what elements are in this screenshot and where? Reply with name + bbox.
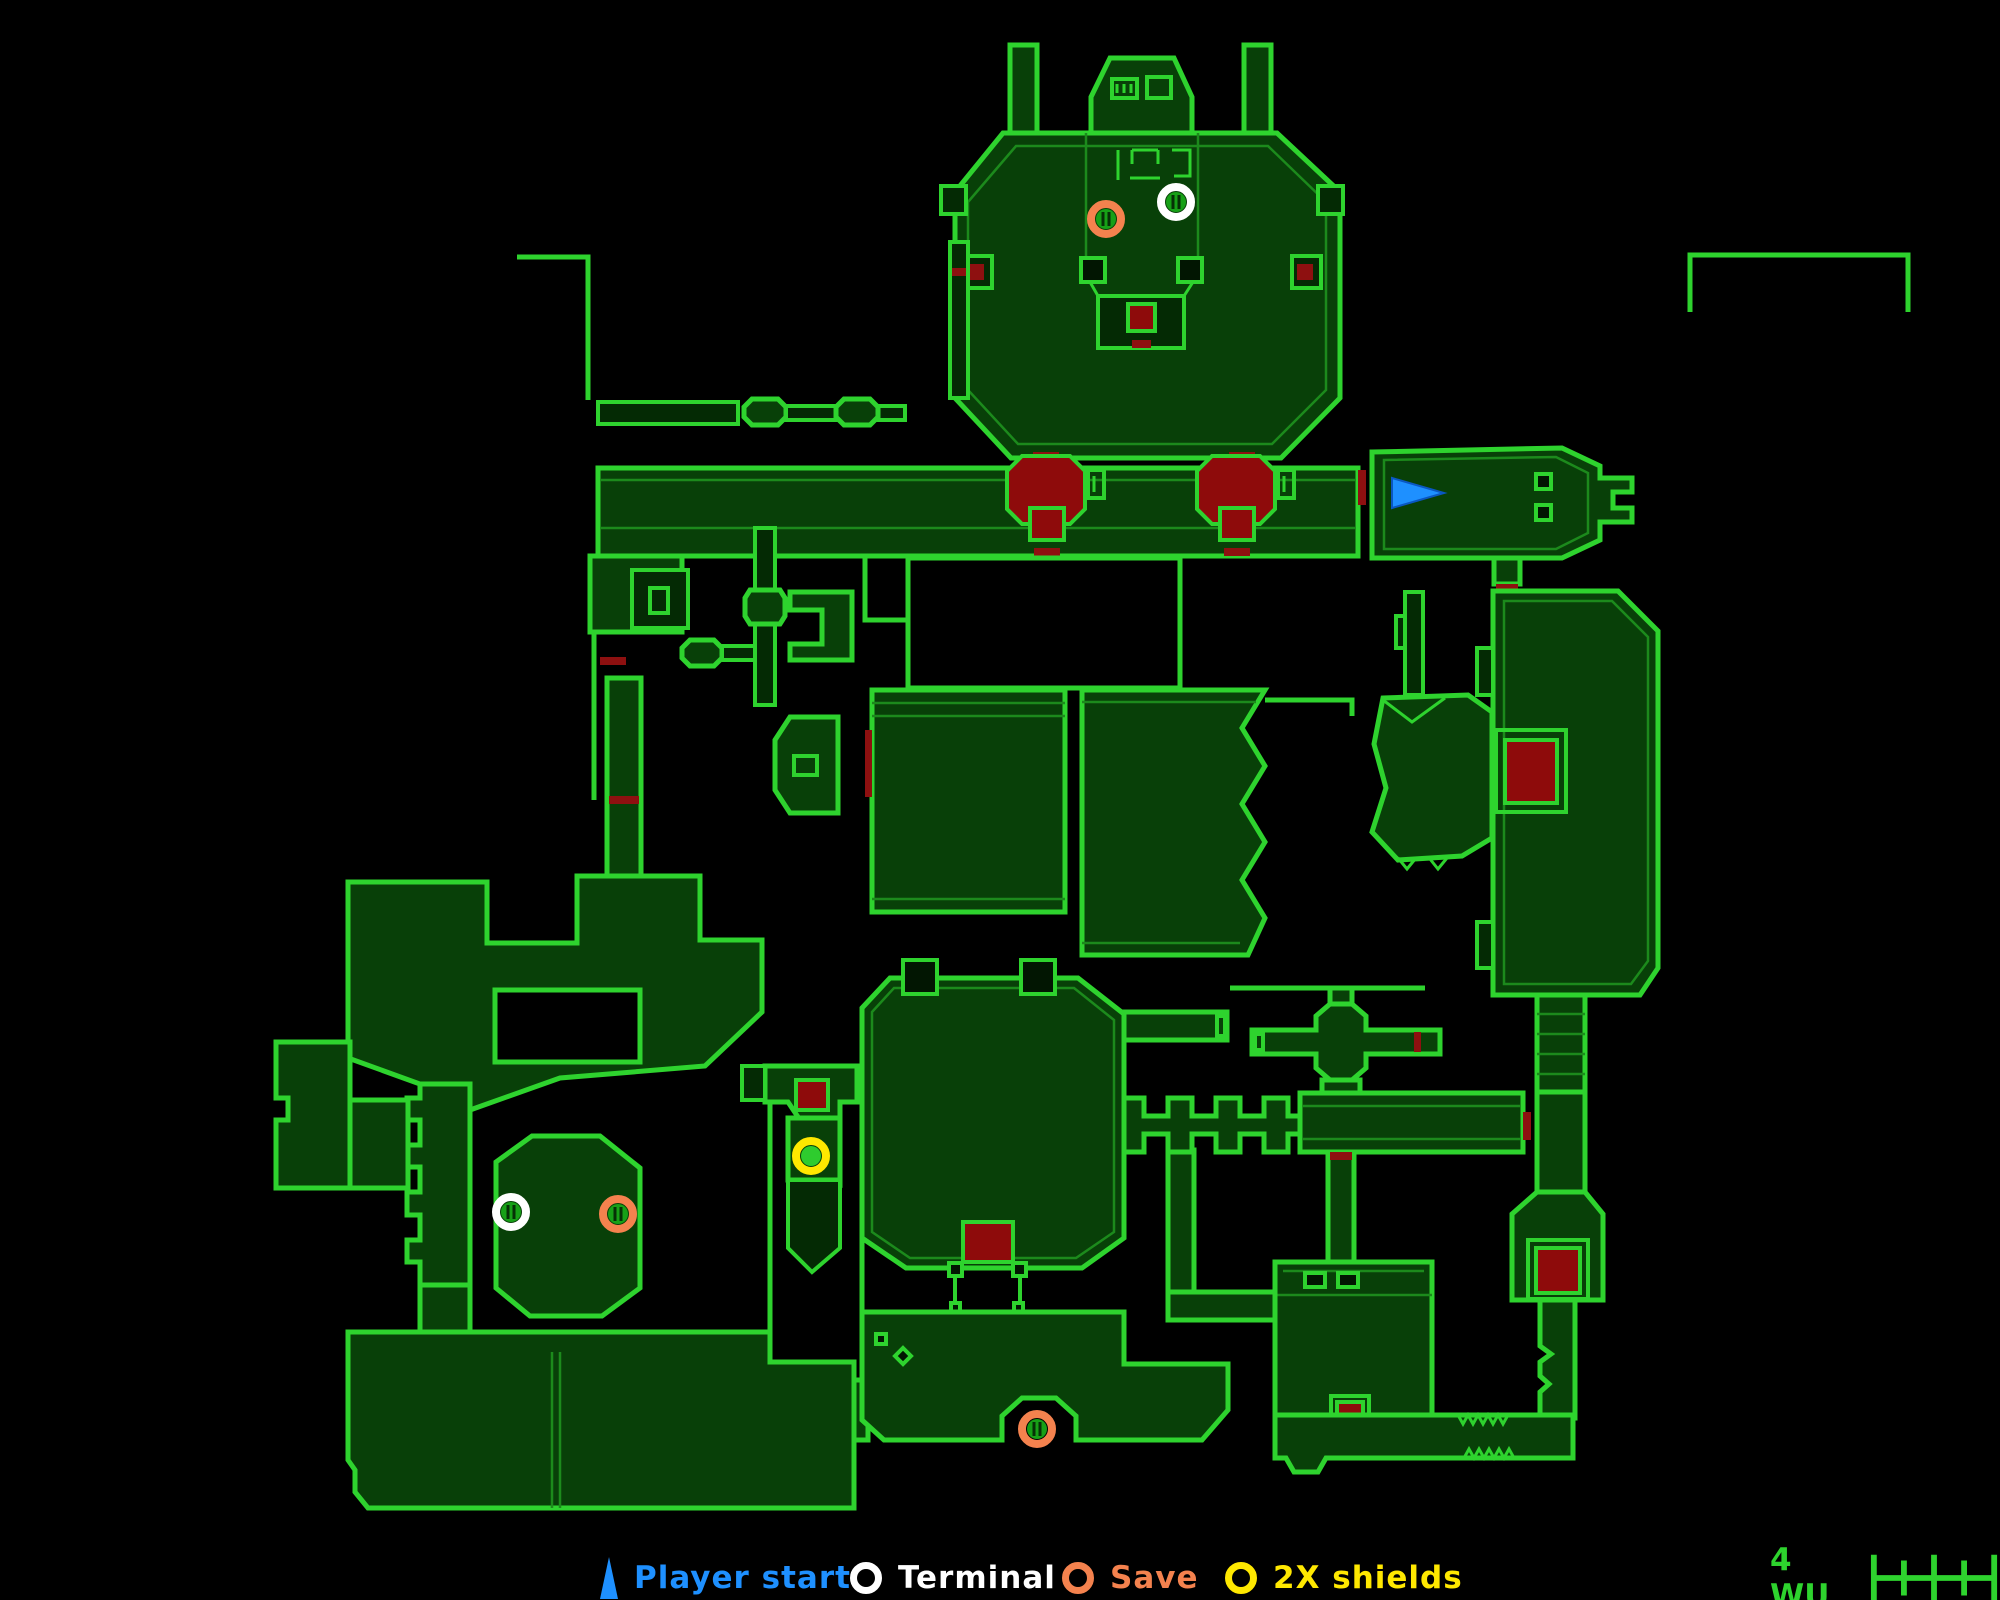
map-shape: [495, 990, 640, 1062]
map-shape: [790, 592, 852, 660]
map-shape: [1396, 592, 1423, 695]
map-shape: [775, 717, 838, 813]
shields-icon: [1225, 1562, 1257, 1594]
map-shape: [1537, 1092, 1585, 1192]
map-shape: [682, 640, 722, 666]
map-shape: [865, 558, 908, 620]
central-west-room: [872, 690, 1065, 912]
map-shape: [745, 590, 785, 624]
map-shape: [742, 1066, 765, 1100]
legend-item-save: Save: [1062, 1552, 1198, 1600]
map-shape: [1128, 304, 1155, 331]
map-shape: [607, 678, 641, 878]
map-shape: [1328, 1152, 1354, 1262]
map-shape: [1168, 1150, 1275, 1320]
map-shape: [1265, 700, 1352, 716]
map-shape: [600, 657, 626, 665]
ladder-shaft: [1537, 995, 1585, 1092]
map-shape: [632, 570, 688, 628]
left-chimney: [1010, 45, 1037, 133]
map-shape: [1414, 1032, 1421, 1052]
map-shape: [968, 264, 984, 280]
south-corridor: [1275, 1415, 1573, 1472]
legend-label-shields: 2X shields: [1273, 1560, 1463, 1596]
map-shape: [1523, 1112, 1531, 1140]
legend-item-shields: 2X shields: [1225, 1552, 1463, 1600]
map-shape: [950, 242, 968, 398]
map-shape: [1300, 1093, 1523, 1152]
map-shape: [1372, 695, 1492, 860]
map-shape: [609, 796, 639, 804]
map-shape: [1124, 1012, 1227, 1040]
map-shape: [1132, 340, 1151, 348]
map-shape: [407, 1084, 470, 1285]
map-shape: [941, 186, 966, 214]
map-shape: [1494, 558, 1520, 584]
map-shape: [963, 1222, 1013, 1262]
map-canvas[interactable]: [0, 0, 2000, 1600]
map-scale: 4 WU: [1770, 1552, 2000, 1600]
northeast-wall-line: [1690, 255, 1908, 312]
legend-label-player-start: Player start: [634, 1560, 851, 1596]
map-shape: [744, 399, 786, 425]
player-start-icon: [600, 1557, 618, 1599]
lava-pool-east: [1505, 740, 1557, 803]
map-shape: [836, 399, 878, 425]
map-shape: [952, 268, 966, 276]
map-shape: [865, 730, 872, 797]
southwest-lower: [348, 1332, 854, 1508]
terminal-icon: [850, 1562, 882, 1594]
map-shape: [420, 1285, 470, 1332]
automap-screen: Player start Terminal Save 2X shields 4 …: [0, 0, 2000, 1600]
map-shape: [955, 1268, 1020, 1312]
legend-item-player-start: Player start: [600, 1552, 851, 1600]
cross-junction: [1252, 1004, 1440, 1080]
save-marker: [1022, 1414, 1052, 1444]
northwest-wall-line: [517, 257, 588, 400]
save-icon: [1062, 1562, 1094, 1594]
map-shape: [1540, 1300, 1575, 1418]
map-shape: [350, 1100, 408, 1188]
map-shape: [722, 646, 756, 660]
map-shape: [1358, 470, 1366, 505]
map-shape: [796, 1080, 828, 1110]
pit: [908, 558, 1180, 688]
scale-ruler-icon: [1869, 1552, 2000, 1600]
map-shape: [1536, 1248, 1580, 1293]
map-shape: [788, 1180, 840, 1272]
legend-label-terminal: Terminal: [898, 1560, 1056, 1596]
legend-item-terminal: Terminal: [850, 1552, 1056, 1600]
map-shape: [598, 402, 738, 424]
map-shape: [1330, 1152, 1352, 1160]
legend-label-save: Save: [1110, 1560, 1198, 1596]
top-tower: [1091, 58, 1192, 133]
map-shape: [1297, 264, 1313, 280]
comb-corridor: [1124, 1098, 1306, 1152]
central-east-room: [1082, 690, 1265, 955]
right-chimney: [1244, 45, 1271, 133]
scale-label: 4 WU: [1770, 1542, 1859, 1600]
map-shape: [1318, 186, 1343, 214]
map-shape: [276, 1042, 350, 1188]
